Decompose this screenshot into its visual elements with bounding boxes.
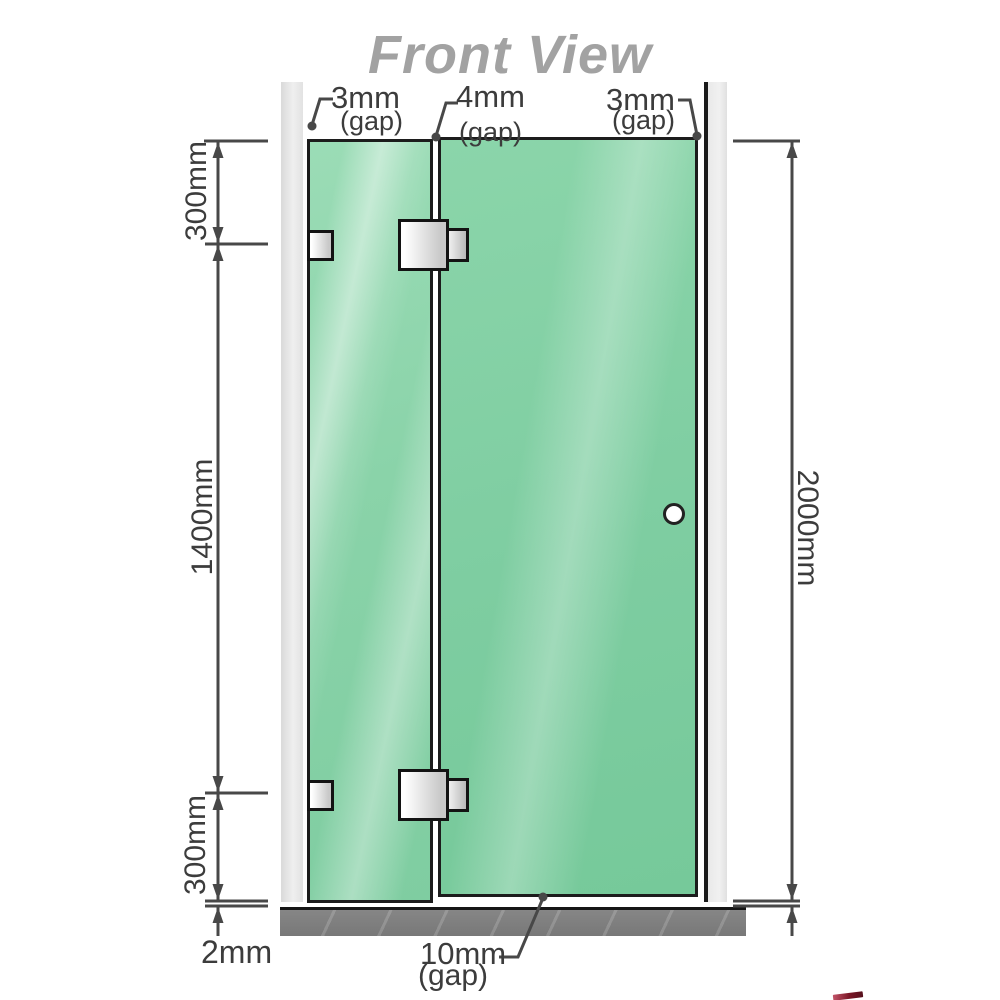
wall-bracket-bottom: [307, 780, 334, 811]
arrow-up-top-left: [213, 142, 224, 158]
label-gap-top-right-unit: (gap): [612, 107, 675, 134]
leader-gap-top-middle: [436, 103, 458, 136]
leader-dot-top-left: [308, 122, 317, 131]
arrow-down-hinge-top: [213, 227, 224, 243]
door-glass-panel: [438, 137, 698, 897]
label-gap-bottom-unit: (gap): [418, 961, 488, 991]
arrow-up-hinge-bottom: [213, 794, 224, 810]
label-gap-top-middle-value: 4mm: [456, 81, 525, 112]
label-dim-2000: 2000mm: [792, 470, 822, 587]
logo-fragment: [833, 991, 864, 1000]
leader-gap-top-left: [312, 99, 333, 125]
hinge-top-right-plate: [446, 228, 469, 262]
arrow-down-hinge-bottom: [213, 776, 224, 792]
label-gap-top-middle-unit: (gap): [459, 119, 522, 146]
arrow-up-floor-right: [787, 907, 798, 923]
arrow-up-floor-left: [213, 907, 224, 923]
hinge-bottom-right-plate: [446, 778, 469, 812]
leader-gap-top-right: [678, 100, 697, 135]
diagram-title: Front View: [315, 24, 705, 86]
hinge-top-left-plate: [398, 219, 449, 271]
arrow-up-top-right: [787, 142, 798, 158]
wall-bracket-top: [307, 230, 334, 261]
door-knob-icon: [663, 503, 685, 525]
floor: [280, 907, 746, 936]
label-dim-300-bottom: 300mm: [181, 795, 211, 895]
left-wall: [281, 82, 303, 902]
label-gap-top-left-unit: (gap): [340, 108, 403, 135]
label-dim-300-top: 300mm: [182, 141, 212, 241]
label-dim-2mm: 2mm: [201, 936, 272, 968]
right-wall: [704, 82, 727, 902]
arrow-down-glass-bottom-left: [213, 884, 224, 900]
label-dim-1400: 1400mm: [188, 459, 218, 576]
arrow-up-hinge-top: [213, 245, 224, 261]
hinge-bottom-left-plate: [398, 769, 449, 821]
front-view-diagram: Front View: [0, 0, 1000, 1000]
arrow-down-glass-bottom-right: [787, 884, 798, 900]
